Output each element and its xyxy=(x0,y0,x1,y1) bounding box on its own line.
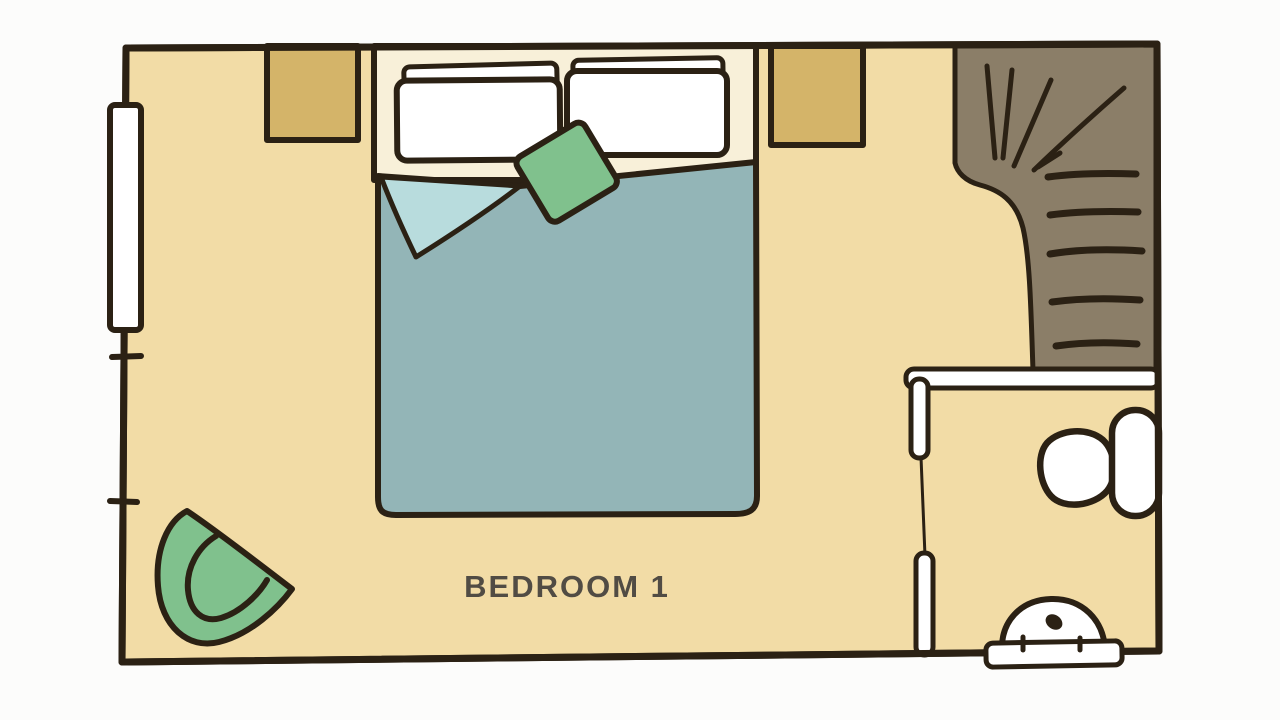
plan-lines: BEDROOM 1 xyxy=(110,44,1159,667)
nightstand-left xyxy=(267,46,358,140)
stairs-step-line xyxy=(1050,250,1142,254)
wall-tick-upper xyxy=(112,356,141,357)
toilet-bowl xyxy=(1040,431,1114,504)
sink-counter xyxy=(986,641,1122,667)
door-jamb-lower xyxy=(916,553,933,655)
nightstand-right xyxy=(771,46,863,145)
stairs-step-line xyxy=(1050,211,1138,215)
stairs-step-line xyxy=(1048,173,1136,177)
stairs-step-line xyxy=(1056,343,1137,346)
floor-plan: BEDROOM 1 xyxy=(0,0,1280,720)
partition-wall-horizontal xyxy=(906,369,1159,388)
window-left xyxy=(110,105,141,330)
stairs-step-line xyxy=(1052,299,1140,302)
wall-tick-lower xyxy=(110,501,137,502)
toilet-tank xyxy=(1112,410,1159,516)
door-jamb-upper xyxy=(911,379,928,458)
room-label: BEDROOM 1 xyxy=(464,569,670,604)
